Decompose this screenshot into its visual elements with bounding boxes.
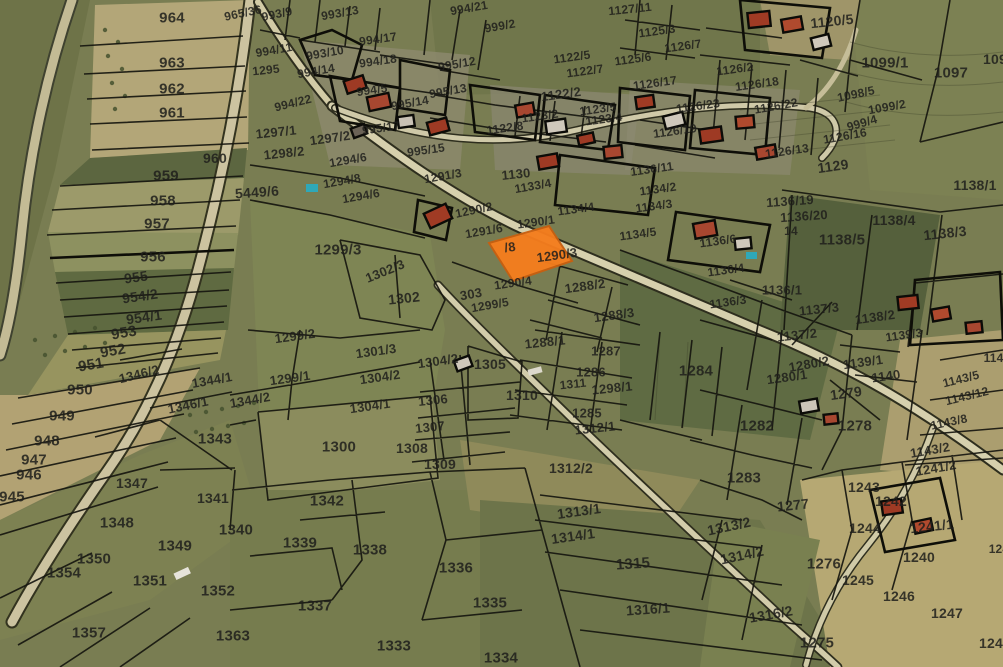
aerial-basemap (0, 0, 1003, 667)
cadastral-map-viewport[interactable]: 964963962961960959958957956955954/2954/1… (0, 0, 1003, 667)
pool (306, 184, 318, 192)
pool (746, 252, 757, 259)
